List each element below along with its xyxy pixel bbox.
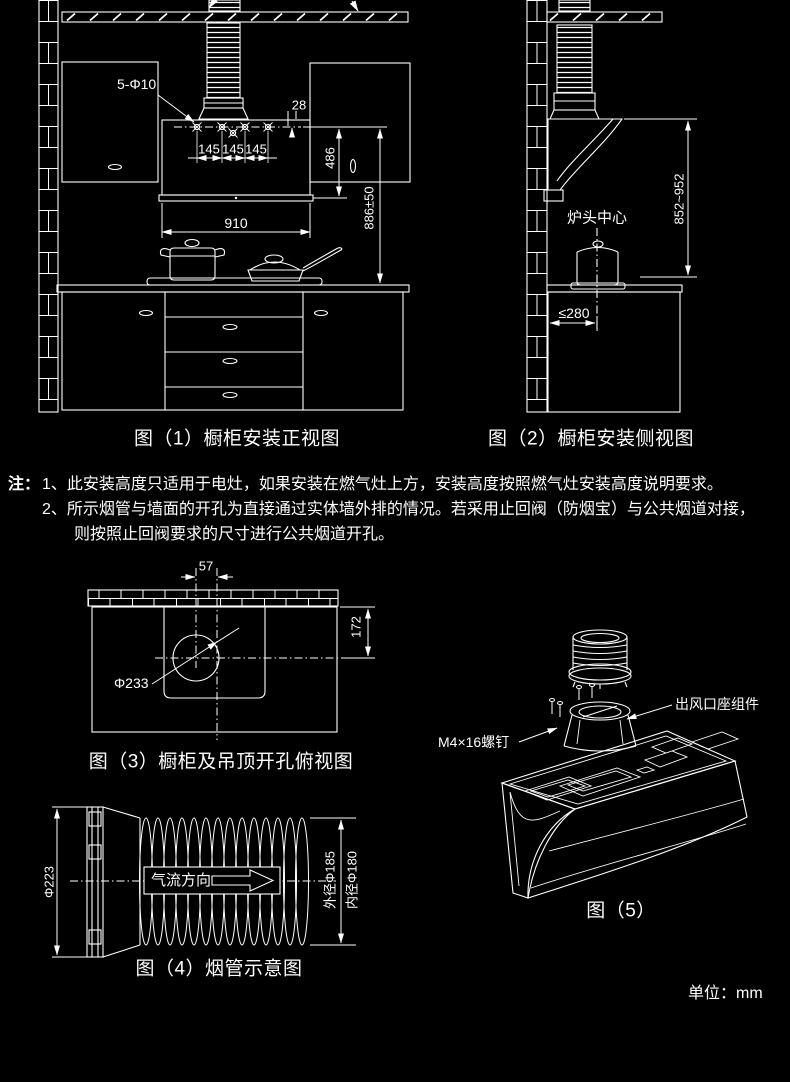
- pot-side-drawing: [571, 241, 625, 289]
- figure2-caption: 图（2）橱柜安装侧视图: [488, 430, 694, 449]
- stock-pot-drawing: [160, 240, 224, 281]
- figure3-drawing: [88, 568, 375, 740]
- figure1-drawing: [39, 0, 410, 412]
- duct-flange: [87, 807, 140, 957]
- brick-wall-side: [527, 0, 547, 412]
- dim-910: 910: [224, 216, 247, 230]
- note-line-2: 2、所示烟管与墙面的开孔为直接通过实体墙外排的情况。若采用止回阀（防烟宝）与公共…: [42, 502, 755, 518]
- inner-diameter-label: 内径Φ180: [346, 851, 359, 909]
- ceiling-hatch-fig2: [547, 12, 662, 22]
- figure5-caption: 图（5）: [586, 902, 656, 921]
- cabinet-handle: [109, 165, 122, 170]
- dim-145-1: 145: [198, 143, 220, 156]
- notes-prefix: 注：: [8, 477, 40, 493]
- countertop-fig1: [57, 285, 409, 292]
- figure4-caption: 图（4）烟管示意图: [135, 960, 302, 979]
- dim-852-952: 852~952: [673, 174, 686, 225]
- screw-leader: [519, 728, 557, 742]
- duct-collar-part: [569, 630, 631, 689]
- dim-280: ≤280: [558, 306, 589, 320]
- screw-label: M4×16螺钉: [438, 735, 509, 749]
- unit-label: 单位：mm: [688, 986, 763, 1002]
- hole-diameter-label: Φ233: [114, 676, 149, 690]
- ceiling-hatch-fig1: [62, 12, 408, 22]
- dim-172: 172: [350, 616, 363, 638]
- figure1-caption: 图（1）橱柜安装正视图: [134, 430, 340, 449]
- cabinet-top-view: [92, 607, 337, 732]
- range-hood-side: [544, 119, 622, 201]
- dim-886-50: 886±50: [363, 186, 376, 229]
- dim-486: 486: [324, 147, 337, 169]
- installation-manual-page: ≥120 5-Φ10 28 145 145 145 910 486 886±50…: [0, 0, 790, 1082]
- brick-wall-left: [39, 0, 58, 412]
- outer-diameter-label: 外径Φ185: [324, 851, 337, 909]
- note-line-3: 则按照止回阀要求的尺寸进行公共烟道开孔。: [74, 527, 394, 543]
- note-line-1: 1、此安装高度只适用于电灶，如果安装在燃气灶上方，安装高度按照燃气灶安装高度说明…: [42, 477, 723, 493]
- ceiling-leader-arrow-right: [352, 1, 358, 11]
- range-hood-front: [159, 120, 313, 201]
- figure5-drawing: [502, 630, 747, 898]
- hood-footprint: [164, 607, 265, 698]
- dim-57: 57: [199, 560, 213, 573]
- dim-145-3: 145: [245, 143, 267, 156]
- outlet-leader: [627, 705, 672, 719]
- flange-diameter-label: Φ223: [43, 866, 56, 898]
- outlet-seat-label: 出风口座组件: [675, 697, 759, 711]
- stove-center-label: 炉头中心: [567, 211, 627, 226]
- frying-pan-drawing: [248, 248, 342, 281]
- mounting-holes: [193, 123, 273, 138]
- figure3-caption: 图（3）橱柜及吊顶开孔俯视图: [89, 753, 354, 772]
- dim-28: 28: [292, 99, 306, 112]
- ceiling-clearance-label: ≥120: [240, 0, 271, 1]
- dim-145-2: 145: [222, 143, 244, 156]
- airflow-label: 气流方向: [151, 873, 211, 888]
- screws-drawing: [550, 684, 595, 718]
- hole-count-label: 5-Φ10: [117, 77, 156, 91]
- hood-body-isometric: [502, 731, 747, 898]
- wall-strip-top-view: [88, 590, 338, 606]
- cabinet-handle: [351, 160, 356, 173]
- base-cabinet-fig1: [62, 292, 403, 410]
